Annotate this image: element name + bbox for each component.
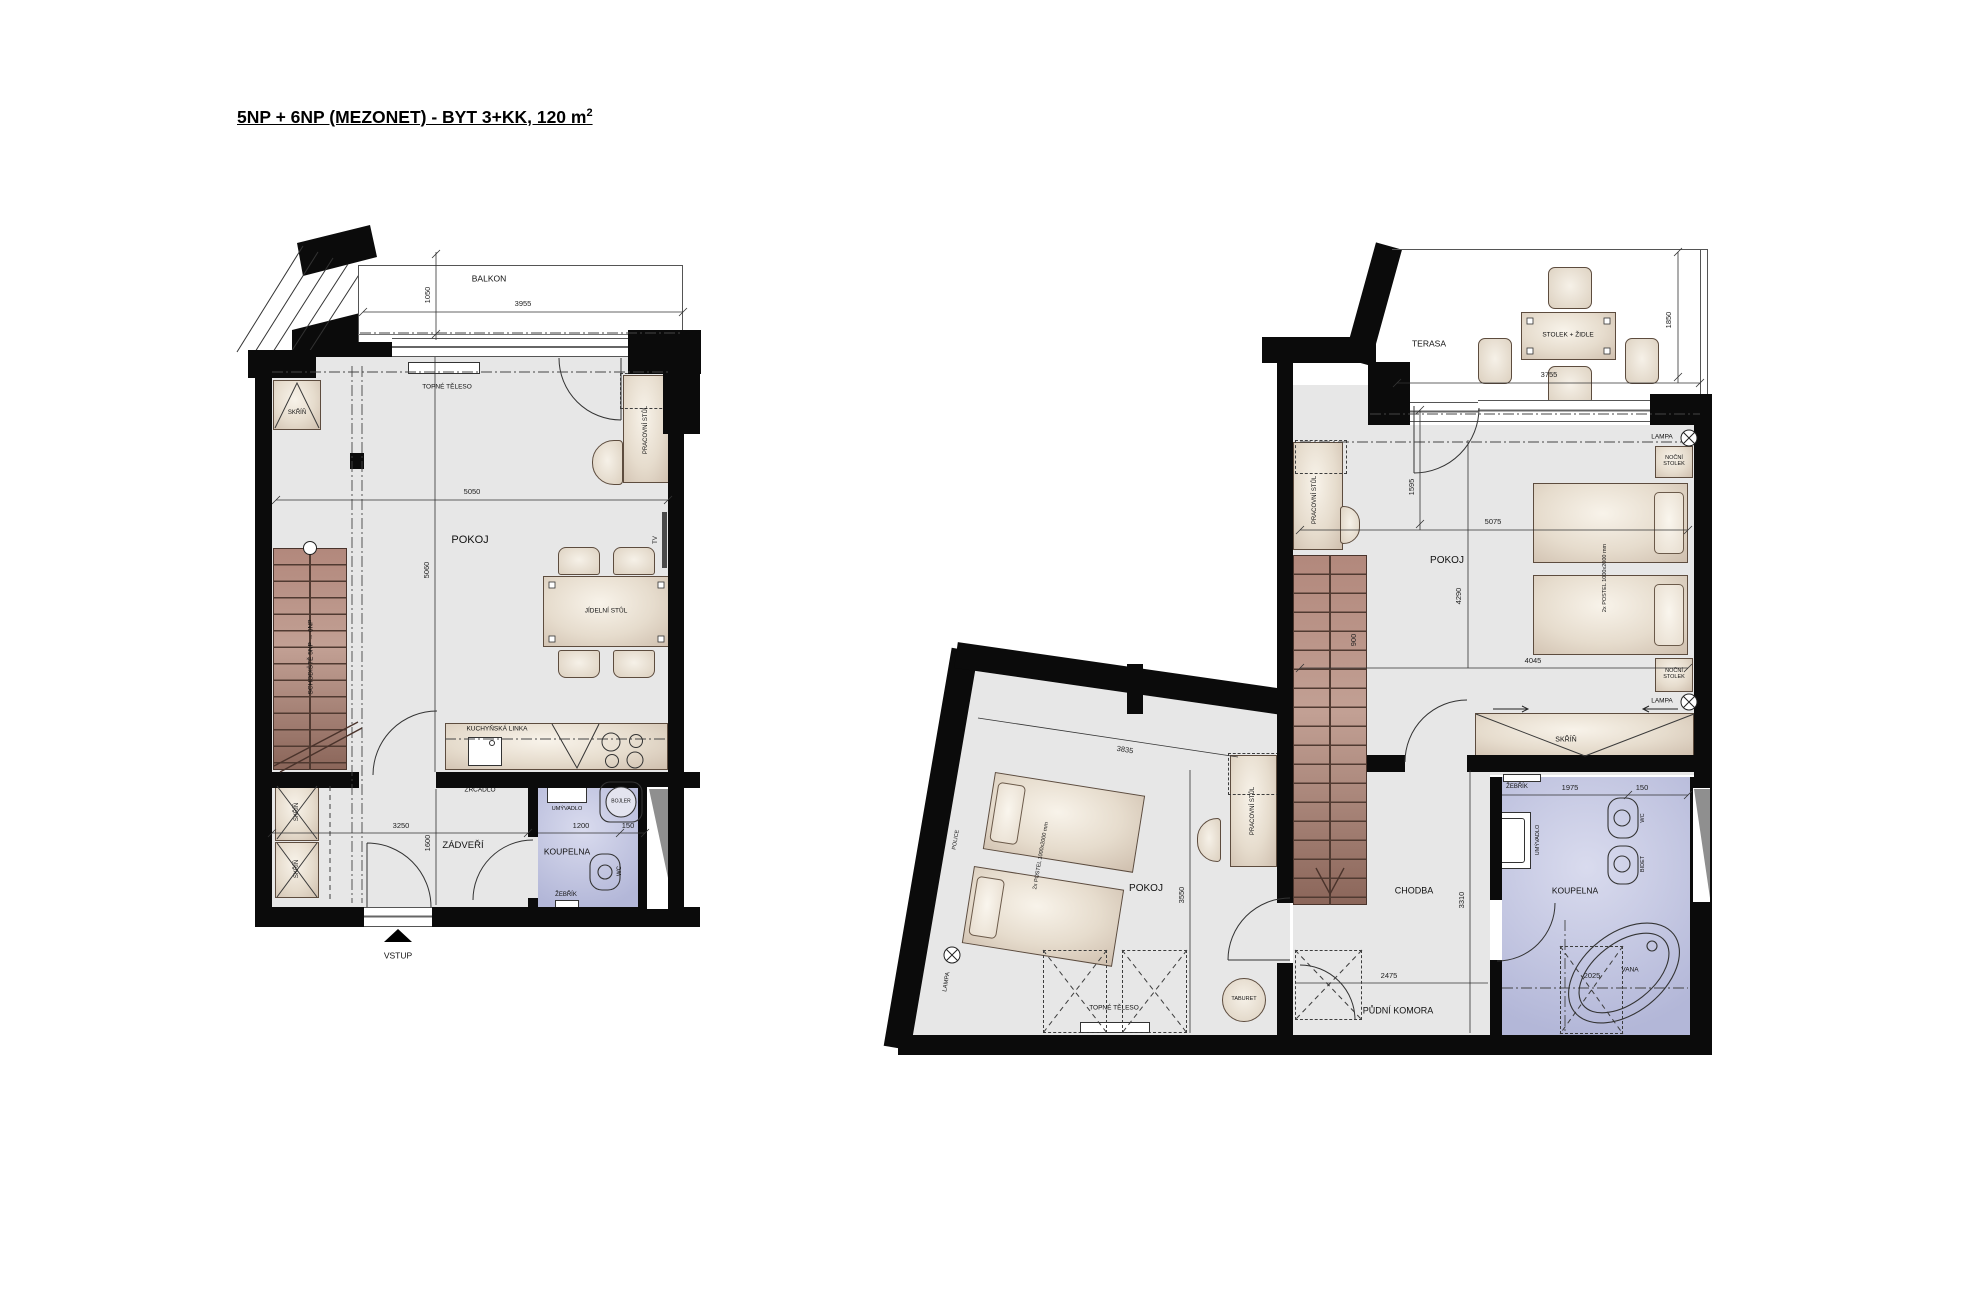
wall-north-6np-b bbox=[1650, 394, 1712, 425]
dim-door-6np: 1595 bbox=[1408, 479, 1416, 496]
dim-zadveri-w: 3250 bbox=[393, 822, 410, 830]
slope-niche-bath bbox=[1693, 788, 1710, 902]
terrace-chair bbox=[1548, 267, 1592, 309]
room-label-koupelna-5np: KOUPELNA bbox=[544, 848, 590, 857]
skylight-box bbox=[1560, 946, 1623, 1034]
terrace-chair bbox=[1478, 338, 1512, 384]
dim-pokoj-h: 5060 bbox=[423, 562, 431, 579]
room-label-terasa: TERASA bbox=[1412, 340, 1446, 349]
wall-pokoj-chodba-a bbox=[1367, 755, 1405, 772]
wardrobe-top bbox=[273, 380, 321, 430]
slope-niche bbox=[647, 787, 668, 909]
label-wc-6np: WC bbox=[1641, 813, 1647, 822]
column bbox=[350, 453, 364, 469]
wall-north-6np-a bbox=[1368, 362, 1410, 425]
label-staircase: SCHODIŠTĚ 5NP → 6NP bbox=[309, 619, 316, 694]
dim-balkon-h: 1050 bbox=[424, 287, 432, 304]
label-shelf: POLICE bbox=[952, 830, 961, 851]
wall-west-6np-a bbox=[1277, 362, 1293, 903]
dim-terasa-w: 3755 bbox=[1541, 371, 1558, 379]
label-desk-bottom: PRACOVNÍ STŮL bbox=[1250, 787, 1256, 835]
dim-koupelna-w: 1200 bbox=[573, 822, 590, 830]
wall-mid-b bbox=[436, 772, 700, 788]
wall-south-6np bbox=[898, 1035, 1712, 1055]
label-wardrobe: SKŘÍŇ bbox=[288, 410, 306, 416]
label-wardrobe: SKŘÍŇ bbox=[294, 860, 300, 878]
title-superscript: 2 bbox=[586, 107, 592, 119]
label-boiler: BOJLER bbox=[611, 799, 630, 804]
wall-east-6np bbox=[1694, 425, 1712, 777]
label-towel-radiator: ŽEBŘÍK bbox=[555, 892, 577, 898]
label-lamp: LAMPA bbox=[1651, 699, 1673, 706]
dim-pokoj2-h: 3550 bbox=[1178, 887, 1186, 904]
terrace-door-opening bbox=[1410, 402, 1478, 422]
label-kitchen: KUCHYŇSKÁ LINKA bbox=[466, 727, 527, 734]
wall-east bbox=[668, 374, 684, 927]
entry-arrow bbox=[384, 929, 412, 942]
label-radiator-6np: TOPNÉ TĚLESO bbox=[1089, 1006, 1139, 1013]
room-label-pokoj-6np: POKOJ bbox=[1430, 556, 1464, 567]
label-beds-top: 2x POSTEL 1000x2000 mm bbox=[1603, 544, 1609, 612]
terrace-north-rail bbox=[1392, 249, 1708, 250]
dim-pokoj6-w: 5075 bbox=[1485, 518, 1502, 526]
label-stool: TABURET bbox=[1231, 997, 1256, 1003]
dim-koupelna6-niche: 150 bbox=[1636, 784, 1649, 792]
dining-chair bbox=[613, 547, 655, 575]
wall-south-a bbox=[255, 907, 364, 927]
dining-chair bbox=[558, 547, 600, 575]
dim-zadveri-h: 1600 bbox=[424, 835, 432, 852]
label-wardrobe: SKŘÍŇ bbox=[294, 803, 300, 821]
dim-koupelna6-w: 1975 bbox=[1562, 784, 1579, 792]
dim-pokoj6-h: 4290 bbox=[1455, 588, 1463, 605]
kitchen-sink bbox=[468, 737, 502, 766]
title-text: 5NP + 6NP (MEZONET) - BYT 3+KK, 120 m bbox=[237, 107, 586, 127]
wall-bath-div-a bbox=[528, 787, 538, 837]
room-label-pokoj2-6np: POKOJ bbox=[1129, 884, 1163, 895]
terrace-window bbox=[1478, 400, 1650, 422]
wall-south-b bbox=[432, 907, 700, 927]
wall-bath-east bbox=[638, 787, 647, 909]
bed-6np-3 bbox=[983, 772, 1145, 873]
floorplan-sheet: 5NP + 6NP (MEZONET) - BYT 3+KK, 120 m2 bbox=[0, 0, 1970, 1314]
label-lamp: LAMPA bbox=[942, 972, 952, 993]
label-wardrobe-6np: SKŘÍŇ bbox=[1555, 736, 1576, 743]
wall-chodba-bath-a bbox=[1490, 777, 1502, 900]
wall-pokoj-chodba-b bbox=[1467, 755, 1712, 772]
wall-bath-div-b bbox=[528, 898, 538, 910]
label-desk: PRACOVNÍ STŮL bbox=[643, 406, 649, 454]
label-mirror: ZRCADLO bbox=[464, 788, 495, 795]
label-dining-table: JÍDELNÍ STŮL bbox=[585, 609, 628, 616]
dim-chodba-h: 3310 bbox=[1458, 892, 1466, 909]
wall-mid-a bbox=[255, 772, 359, 788]
room-label-koupelna-6np: KOUPELNA bbox=[1552, 887, 1598, 896]
label-terrace-table: STOLEK + ŽIDLE bbox=[1542, 333, 1593, 340]
label-towel-radiator-6np: ŽEBŘÍK bbox=[1506, 784, 1528, 790]
label-entry: VSTUP bbox=[384, 952, 412, 961]
label-radiator: TOPNÉ TĚLESO bbox=[422, 385, 472, 392]
balcony-window bbox=[392, 338, 628, 357]
bed-pillow bbox=[968, 876, 1005, 940]
dim-terasa-h: 1850 bbox=[1665, 312, 1673, 329]
wall-chodba-bath-b bbox=[1490, 960, 1502, 1035]
bed-pillow bbox=[1654, 492, 1684, 554]
dim-stair: 900 bbox=[1350, 634, 1358, 647]
dim-chodba-w: 2475 bbox=[1381, 972, 1398, 980]
dim-balkon-w: 3955 bbox=[515, 300, 532, 308]
terrace-chair bbox=[1625, 338, 1659, 384]
desk-chair bbox=[1197, 818, 1221, 862]
skylight-box bbox=[1043, 950, 1107, 1033]
terrace-east-rail bbox=[1700, 250, 1708, 396]
room-label-pokoj-5np: POKOJ bbox=[451, 535, 488, 547]
terrace-slant-wall bbox=[1357, 246, 1389, 362]
bed-pillow bbox=[1654, 584, 1684, 646]
dim-pokoj2-w: 3835 bbox=[1116, 745, 1134, 755]
skylight-box bbox=[1295, 950, 1362, 1020]
label-lamp: LAMPA bbox=[1651, 435, 1673, 442]
label-nightstand: NOČNÍ STOLEK bbox=[1654, 456, 1694, 468]
wall-ne-corner bbox=[628, 330, 701, 374]
dim-koupelna-niche: 150 bbox=[622, 822, 635, 830]
label-desk-top: PRACOVNÍ STŮL bbox=[1312, 476, 1318, 524]
roof-hatch-lines bbox=[237, 246, 362, 352]
entry-door-opening bbox=[364, 907, 432, 927]
tv bbox=[662, 512, 667, 568]
wardrobe-6np bbox=[1475, 713, 1694, 757]
dim-pokoj-w: 5050 bbox=[464, 488, 481, 496]
dim-pokoj6-w2: 4045 bbox=[1525, 657, 1542, 665]
label-tv: TV bbox=[653, 536, 659, 544]
radiator-5np bbox=[408, 362, 480, 374]
chodba-pokoj-door bbox=[1228, 898, 1290, 960]
label-wc: WC bbox=[617, 866, 623, 876]
dining-chair bbox=[613, 650, 655, 678]
room-label-komora: PŮDNÍ KOMORA bbox=[1363, 1006, 1434, 1015]
skylight-box bbox=[1122, 950, 1187, 1033]
room-label-chodba: CHODBA bbox=[1395, 886, 1434, 895]
stair-newel bbox=[303, 541, 317, 555]
desk-shelf-dashed bbox=[1295, 440, 1347, 474]
stair-center-rail-6np bbox=[1329, 555, 1331, 905]
room-label-zadveri: ZÁDVEŘÍ bbox=[442, 841, 483, 851]
label-washbasin-6np: UMÝVADLO bbox=[1536, 825, 1542, 855]
dining-chair bbox=[558, 650, 600, 678]
wall-west bbox=[255, 350, 272, 927]
lower-room-north-wall bbox=[956, 655, 1290, 703]
bed-pillow bbox=[989, 782, 1026, 846]
label-bathtub: VANA bbox=[1621, 968, 1638, 975]
label-bidet: BIDET bbox=[1641, 856, 1647, 872]
label-nightstand: NOČNÍ STOLEK bbox=[1654, 669, 1694, 681]
dim-vana: 2025 bbox=[1584, 972, 1601, 980]
label-washbasin: UMÝVADLO bbox=[552, 807, 582, 813]
room-label-balkon: BALKON bbox=[472, 275, 507, 284]
towel-radiator-6np bbox=[1503, 774, 1541, 782]
page-title: 5NP + 6NP (MEZONET) - BYT 3+KK, 120 m2 bbox=[237, 107, 593, 128]
